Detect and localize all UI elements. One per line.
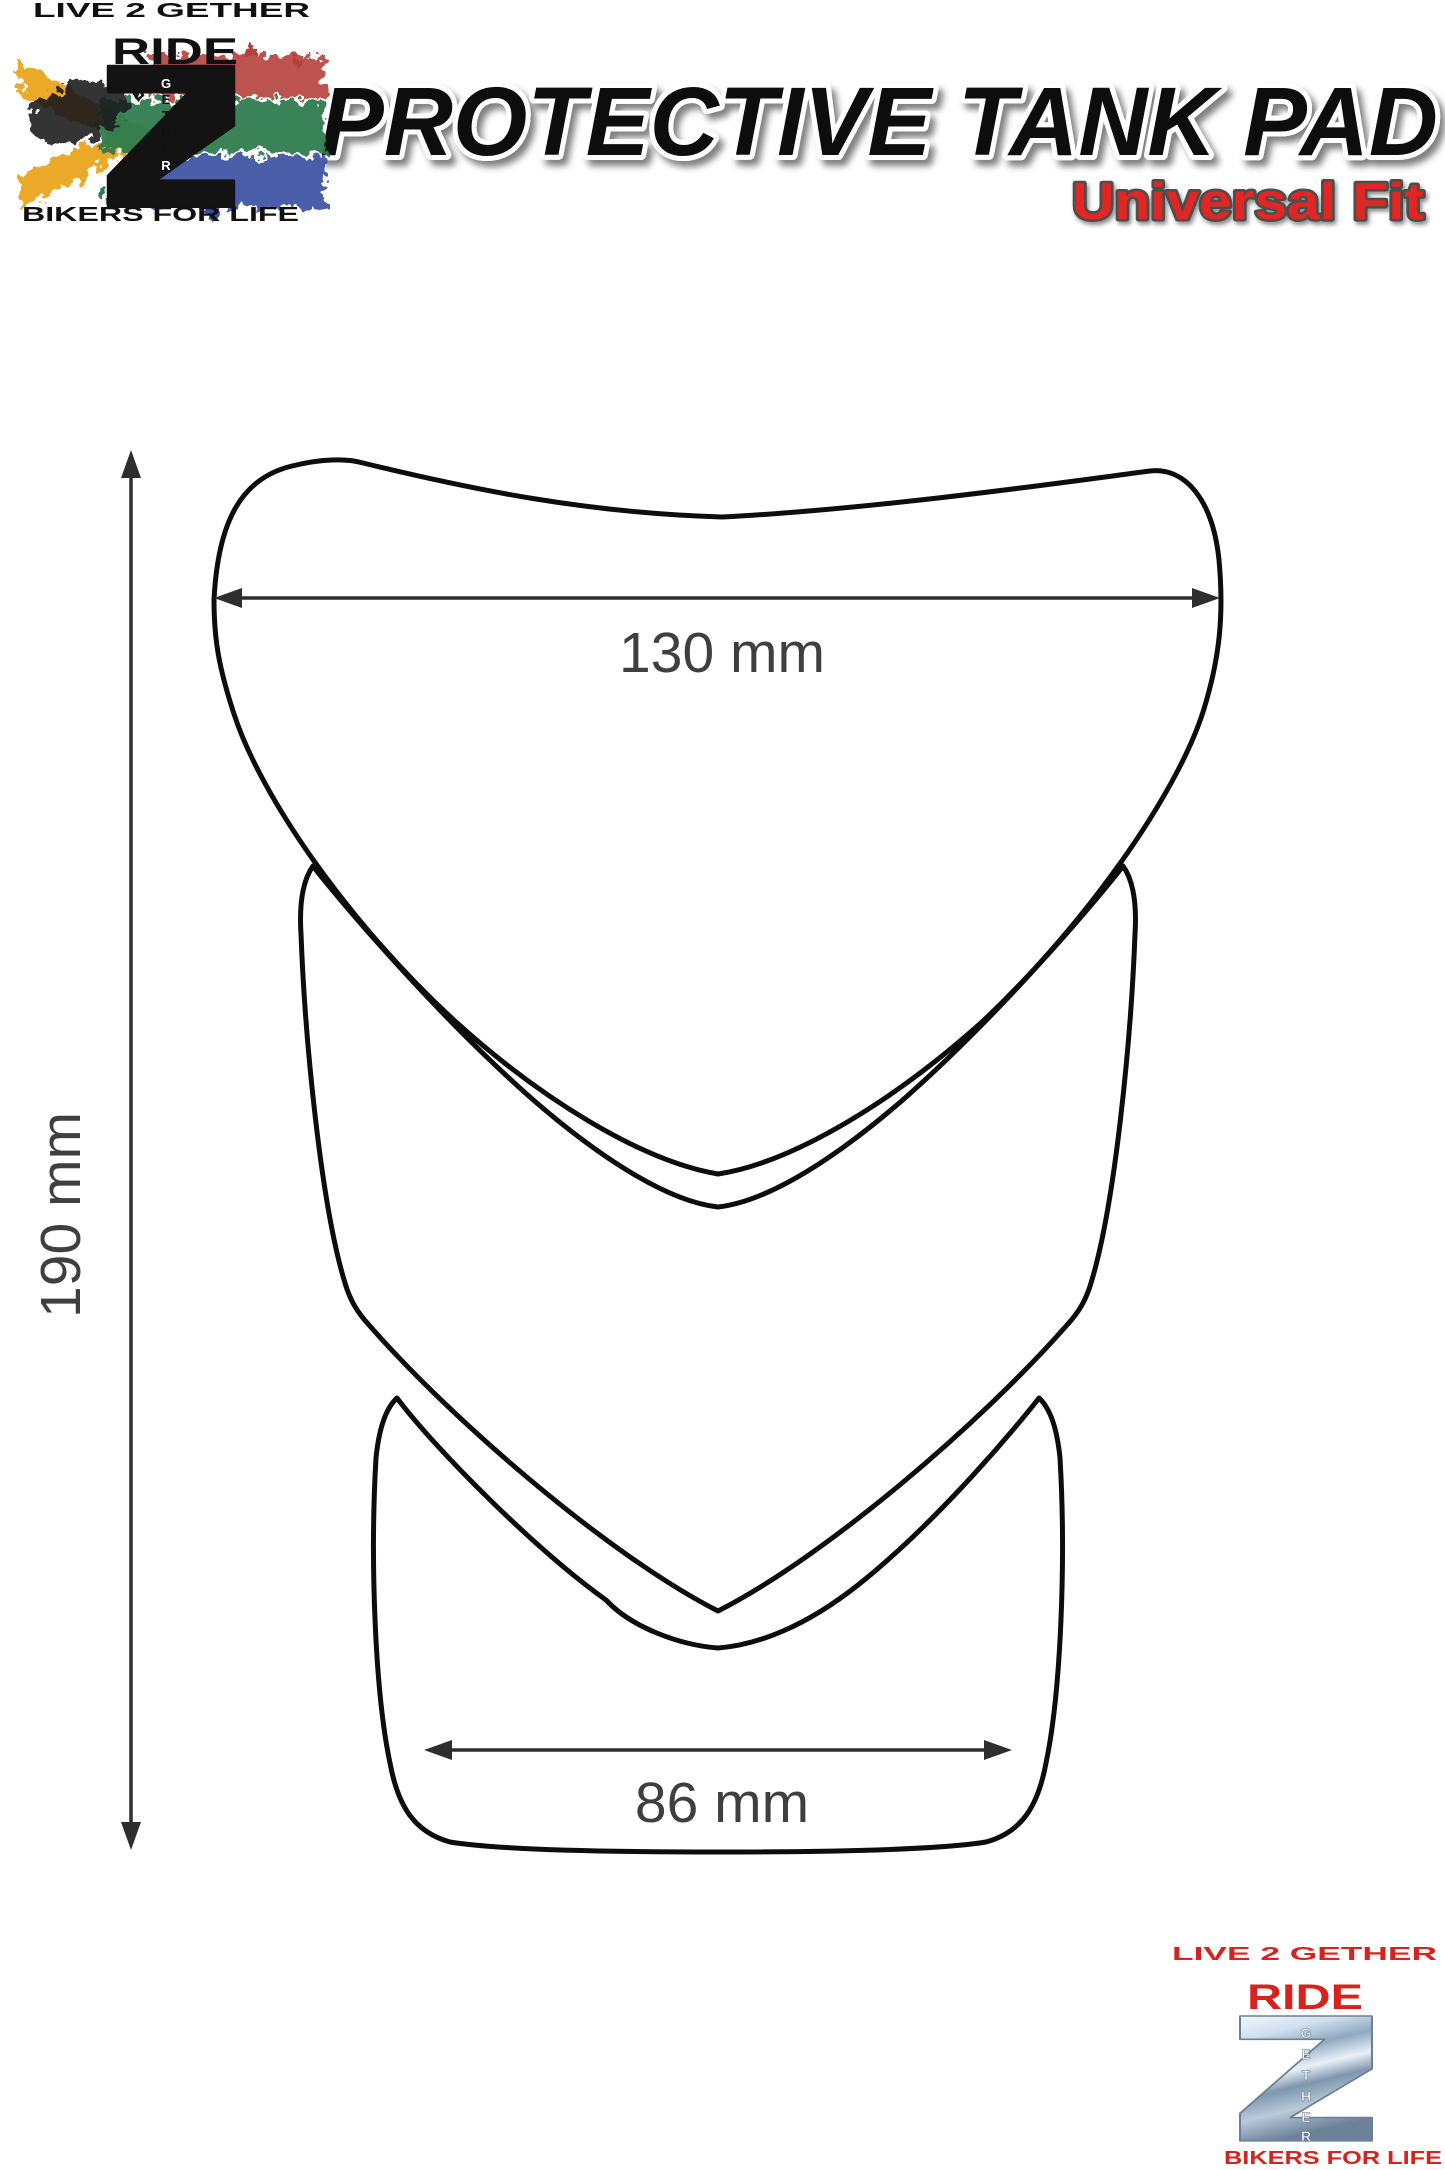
vertical-letter: E	[1301, 2046, 1310, 2062]
logo-ride-label: RIDE	[112, 31, 238, 72]
vertical-letter: G	[1301, 2025, 1312, 2041]
vertical-letter: G	[161, 76, 171, 91]
vertical-letter: H	[161, 124, 170, 139]
logo-ride-label: RIDE	[1247, 1978, 1363, 2017]
vertical-letter: E	[162, 92, 171, 107]
arrowhead-up-icon	[121, 450, 141, 478]
vertical-letter: T	[162, 108, 170, 123]
page-title: PROTECTIVE TANK PAD	[320, 67, 1438, 176]
dimension-label-bottom-width: 86 mm	[635, 1771, 809, 1835]
tank-pad-dimension-drawing: 130 mm 86 mm 190 mm	[0, 0, 1445, 2170]
vertical-letter: R	[1301, 2128, 1311, 2144]
logo-tagline-top: LIVE 2 GETHER	[33, 0, 311, 22]
dimension-overall-height	[121, 450, 141, 1850]
logo-vertical-word: G E T H E R	[161, 76, 171, 173]
dimension-label-overall-height: 190 mm	[29, 1112, 93, 1318]
vertical-letter: H	[1301, 2088, 1311, 2104]
vertical-letter: R	[161, 158, 171, 173]
vertical-letter: E	[1301, 2109, 1310, 2125]
logo-tagline-bottom: BIKERS FOR LIFE	[1224, 2148, 1442, 2168]
dimension-label-top-width: 130 mm	[619, 621, 825, 685]
logo-top-left: G E T H E R LIVE 2 GETHER RIDE BIKERS FO…	[0, 0, 330, 235]
vertical-letter: T	[1302, 2067, 1311, 2083]
logo-bottom-right: LIVE 2 GETHER RIDE G E T H E R BIKERS FO…	[1145, 1935, 1445, 2170]
vertical-letter: E	[162, 140, 171, 155]
logo-tagline-top: LIVE 2 GETHER	[1172, 1944, 1437, 1964]
logo-tagline-bottom: BIKERS FOR LIFE	[22, 203, 299, 226]
page-subtitle: Universal Fit	[1072, 173, 1424, 231]
arrowhead-down-icon	[121, 1822, 141, 1850]
